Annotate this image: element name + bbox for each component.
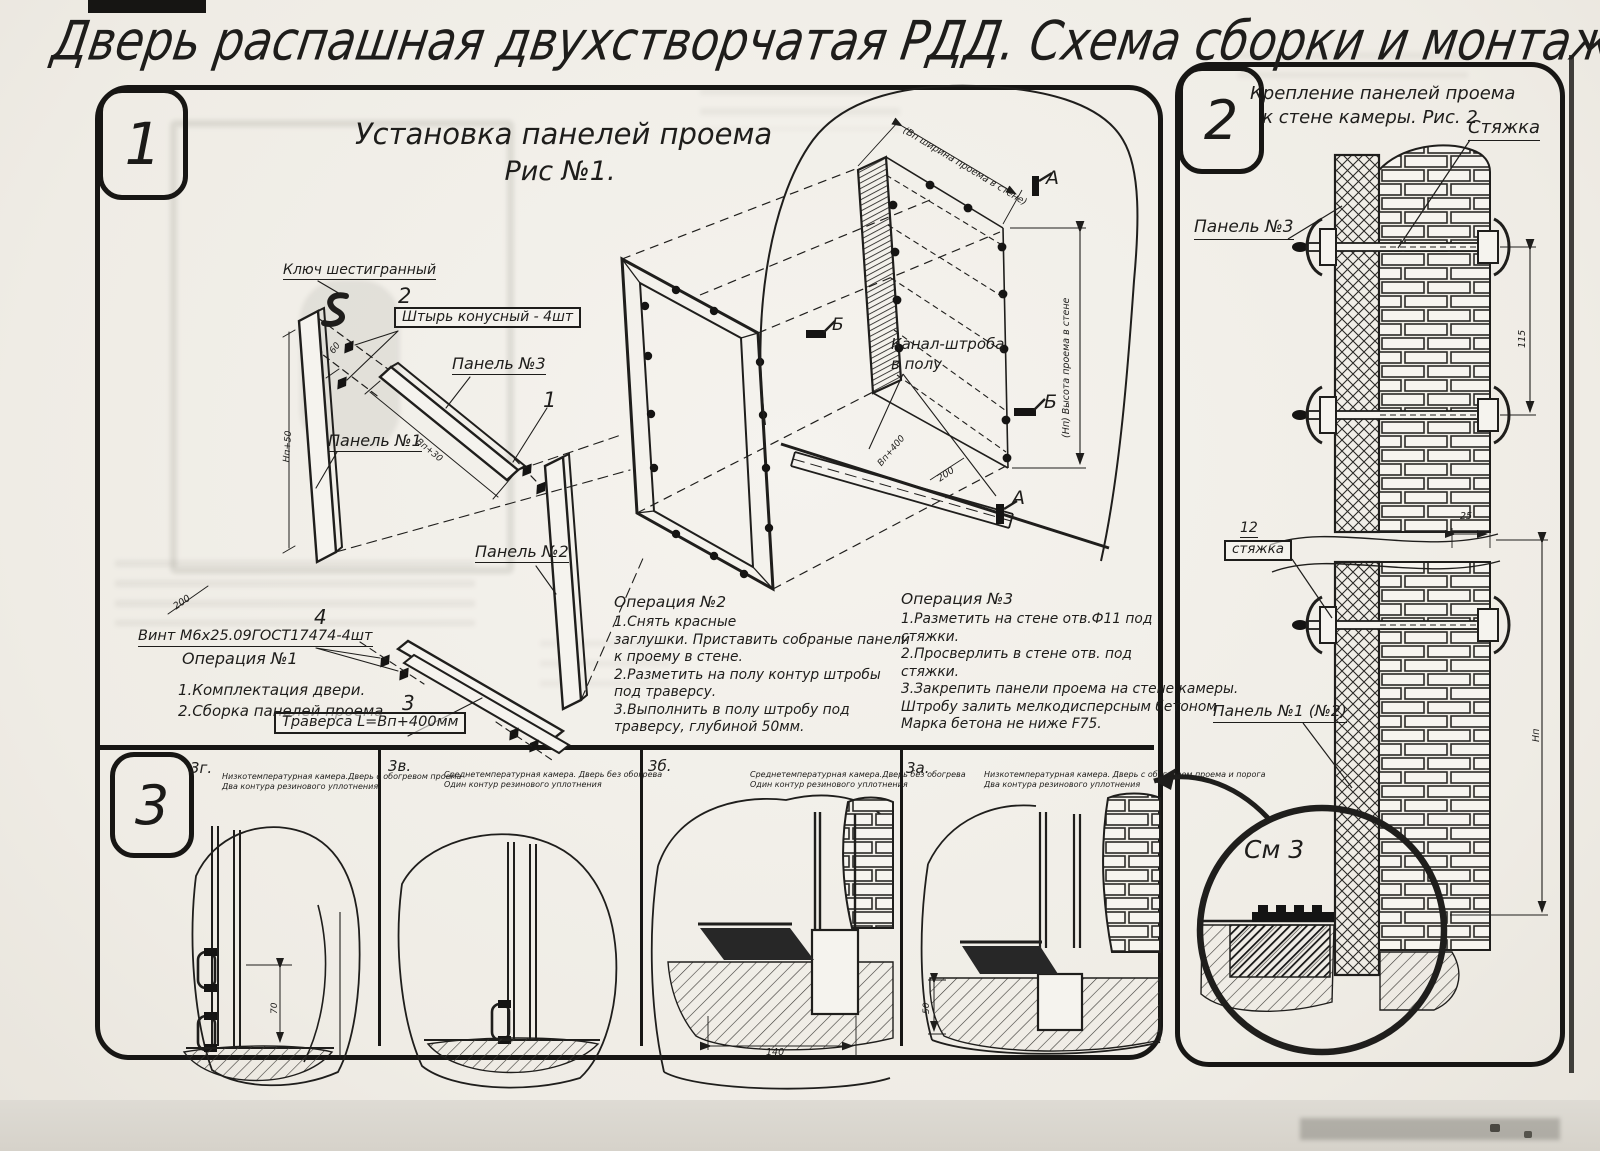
detail-3g-drawing: [184, 826, 360, 1085]
figure1-title-line1: Установка панелей проема: [355, 118, 765, 151]
detail-3a-desc-line2: Два контура резинового уплотнения: [984, 780, 1266, 790]
detail-3v-drawing: [399, 834, 617, 1087]
scan-artifact-bottom-smudge: [1300, 1118, 1560, 1140]
scan-artifact-top-bar: [88, 0, 206, 13]
detail-3g-id: 3г.: [190, 760, 212, 777]
door-frame-drawing: [622, 168, 1006, 589]
detail-3g-description: Низкотемпературная камера.Дверь с обогре…: [222, 772, 461, 792]
dim-140: 140: [766, 1048, 784, 1059]
dim-opening-height: (Нп) Высота проема в стене: [1062, 298, 1073, 438]
operation3-line: Марка бетона не ниже F75.: [901, 716, 1238, 734]
operation3-line: стяжки.: [901, 664, 1238, 682]
operation2-title: Операция №2: [614, 594, 726, 612]
screw-label: Винт М6х25.09ГОСТ17474-4шт: [138, 628, 373, 647]
cone-pin-label: Штырь конусный - 4шт: [394, 307, 581, 328]
panel2-label: Панель №2: [475, 543, 569, 563]
operation2-line: 1.Снять красные: [614, 614, 910, 632]
figure2-title-line2: к стене камеры. Рис. 2: [1250, 108, 1490, 129]
item1-position-number: 1: [543, 388, 556, 412]
section-marker-a-top: А: [1046, 168, 1059, 190]
section-marker-b-right: Б: [1044, 392, 1057, 414]
operation3-line: 1.Разметить на стене отв.Ф11 под: [901, 611, 1238, 629]
canal-label-line1: Канал-штроба: [891, 336, 1004, 353]
fig2-panel3-label: Панель №3: [1194, 218, 1294, 240]
hex-key-label: Ключ шестигранный: [283, 262, 436, 280]
fig2-panel12-label: Панель №1 (№2): [1213, 703, 1347, 723]
canal-label-line2: в полу: [891, 356, 942, 373]
dim-70: 70: [270, 1003, 280, 1014]
operation2-line: 3.Выполнить в полу штробу под: [614, 702, 910, 720]
detail-3b-id: 3б.: [648, 758, 672, 775]
operation2-text: 1.Снять красные заглушки. Приставить соб…: [614, 614, 910, 737]
detail-3a-description: Низкотемпературная камера. Дверь с обогр…: [984, 770, 1266, 790]
operation2-line: к проему в стене.: [614, 649, 910, 667]
detail-3a-desc-line1: Низкотемпературная камера. Дверь с обогр…: [984, 770, 1266, 780]
scan-artifact-speck: [1524, 1131, 1532, 1138]
detail-3v-desc-line2: Один контур резинового уплотнения: [444, 780, 662, 790]
panel1-label: Панель №1: [328, 432, 422, 452]
traverse-label: Траверса L=Вп+400мм: [274, 712, 466, 734]
page-title: Дверь распашная двухстворчатая РДД. Схем…: [48, 10, 1600, 72]
dim-115: 115: [1518, 330, 1529, 348]
operation3-line: Штробу залить мелкодисперсным бетоном: [901, 699, 1238, 717]
section-marker-a-bottom: А: [1012, 488, 1025, 510]
detail-3g-desc-line2: Два контура резинового уплотнения: [222, 782, 461, 792]
tie-label-top: Стяжка: [1468, 118, 1540, 141]
detail-3v-description: Среднетемпературная камера. Дверь без об…: [444, 770, 662, 790]
section-marker-b-left: Б: [832, 316, 844, 336]
tie-position-number: 12: [1240, 520, 1258, 538]
screw-position-number: 4: [314, 606, 327, 629]
detail-3g-desc-line1: Низкотемпературная камера.Дверь с обогре…: [222, 772, 461, 782]
operation3-text: 1.Разметить на стене отв.Ф11 под стяжки.…: [901, 611, 1238, 734]
detail-3a-drawing: [922, 794, 1160, 1054]
dim-50: 50: [922, 1003, 932, 1014]
operation3-line: 2.Просверлить в стене отв. под: [901, 646, 1238, 664]
operation2-line: под траверсу.: [614, 684, 910, 702]
operation2-line: 2.Разметить на полу контур штробы: [614, 667, 910, 685]
detail-3v-id: 3в.: [388, 758, 411, 775]
operation1-line1: 1.Комплектация двери.: [178, 682, 365, 699]
detail-3b-description: Среднетемпературная камера.Дверь без обо…: [750, 770, 966, 790]
tie-box-label: стяжка: [1224, 540, 1292, 561]
detail-3v-desc-line1: Среднетемпературная камера. Дверь без об…: [444, 770, 662, 780]
operation1-title: Операция №1: [182, 650, 298, 668]
detail-3b-desc-line2: Один контур резинового уплотнения: [750, 780, 966, 790]
operation3-title: Операция №3: [901, 591, 1013, 609]
figure2-title-line1: Крепление панелей проема: [1250, 84, 1490, 105]
operation2-line: траверсу, глубиной 50мм.: [614, 719, 910, 737]
dim-wall-height: Нп: [1532, 729, 1543, 742]
operation2-line: заглушки. Приставить собраные панели: [614, 632, 910, 650]
drawing-linework: [0, 0, 1600, 1151]
scan-artifact-right-line: [1569, 55, 1574, 1073]
panel3-label: Панель №3: [452, 355, 546, 375]
pin-position-number: 2: [398, 284, 411, 308]
dim-25: 25: [1460, 512, 1472, 523]
operation3-line: 3.Закрепить панели проема на стене камер…: [901, 681, 1238, 699]
detail-3a-id: 3а.: [906, 760, 930, 777]
figure1-title-line2: Рис №1.: [355, 156, 765, 187]
see-detail-3-label: См 3: [1244, 836, 1304, 865]
detail-3b-desc-line1: Среднетемпературная камера.Дверь без обо…: [750, 770, 966, 780]
scan-artifact-speck: [1490, 1124, 1500, 1132]
detail-3b-drawing: [652, 795, 893, 1088]
operation3-line: стяжки.: [901, 629, 1238, 647]
dim-panel1-length: Нп+50: [282, 430, 295, 462]
wall-fixing-section-drawing: [1154, 140, 1548, 1052]
